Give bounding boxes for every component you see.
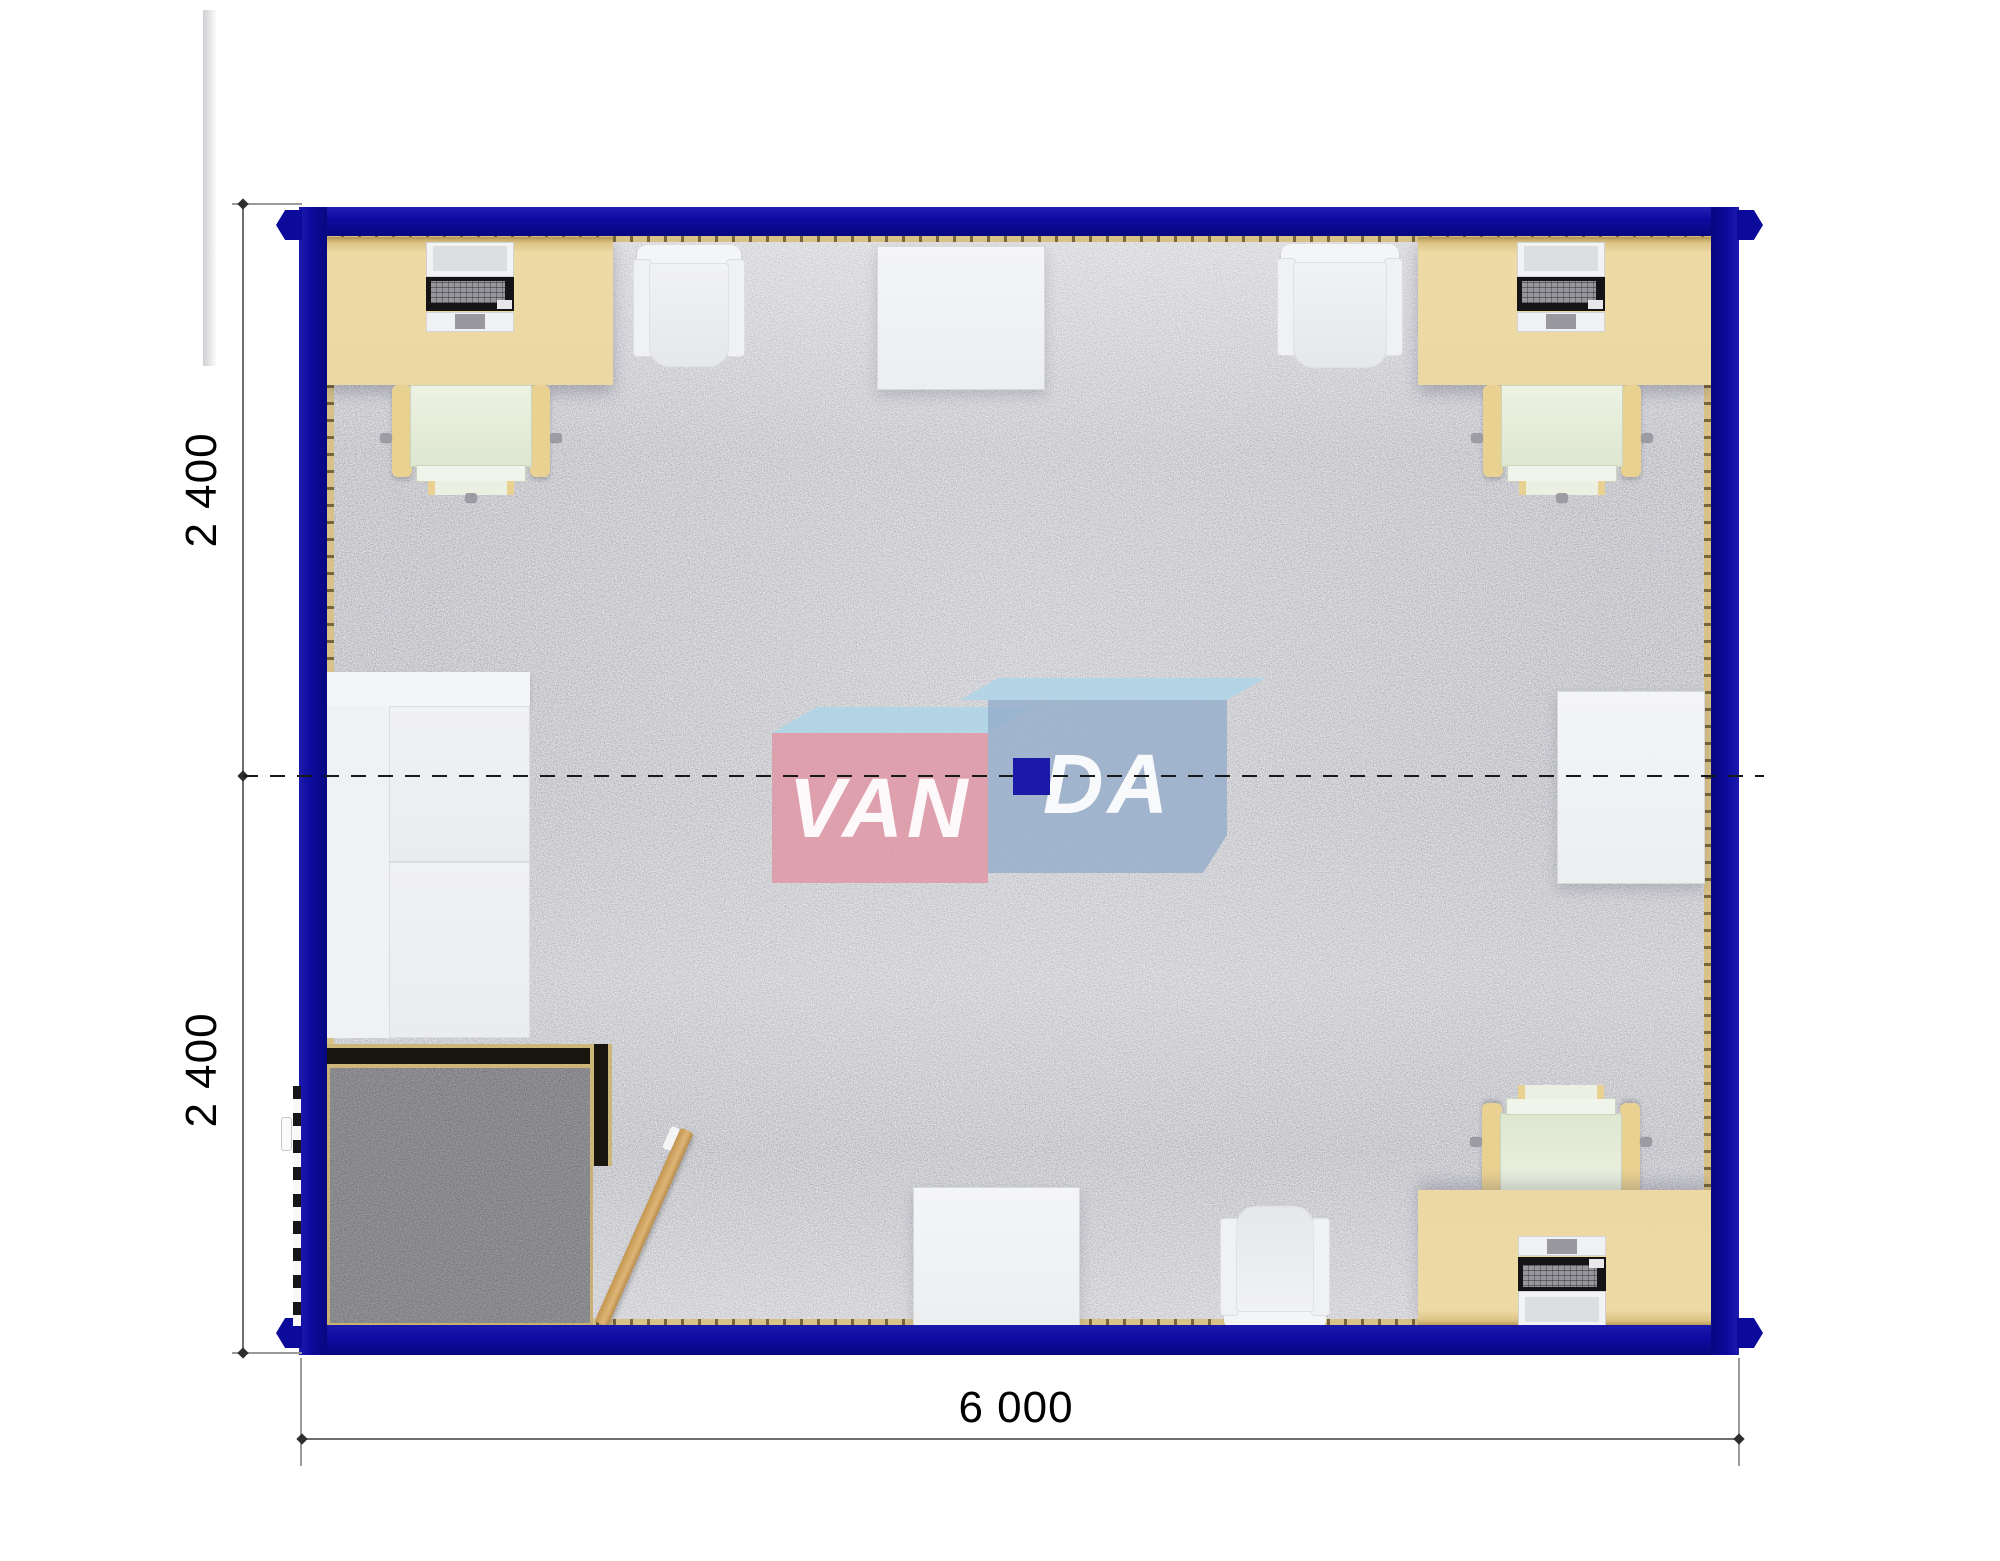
sofa-backrest	[327, 706, 390, 1038]
entry-door-handle	[281, 1117, 292, 1151]
watermark-text-right: DA	[1043, 737, 1172, 831]
entry-door-dashed-marker	[293, 1086, 301, 1326]
floor-plan-canvas: VAN DA	[0, 0, 2000, 1561]
corner-fitting-top-right	[1737, 210, 1763, 240]
dimension-label-left-bottom: 2 400	[177, 1012, 227, 1127]
module-centerline	[243, 775, 1764, 777]
sofa	[327, 672, 530, 1038]
computer-bottom-right	[1518, 1238, 1606, 1326]
sofa-cushion-1	[389, 706, 530, 862]
table-bottom	[913, 1187, 1080, 1328]
watermark-box-left: VAN	[772, 733, 988, 883]
table-right	[1557, 691, 1705, 884]
computer-touchpad	[455, 314, 485, 329]
chair-seat	[410, 385, 532, 467]
table-top	[877, 246, 1045, 390]
dimension-label-left-top: 2 400	[177, 432, 227, 547]
watermark-box-right-top-face	[960, 678, 1265, 700]
guest-chair-top-1	[633, 245, 745, 369]
computer-screen	[426, 242, 514, 277]
guest-chair-top-2	[1277, 244, 1403, 370]
computer-screen-glass	[433, 246, 507, 271]
office-chair-top-right	[1483, 385, 1641, 497]
computer-keyboard	[426, 277, 514, 311]
entry-wall-top	[327, 1044, 612, 1068]
computer-top-right	[1517, 242, 1605, 330]
entry-wall-right	[590, 1044, 612, 1166]
dimension-label-bottom: 6 000	[958, 1383, 1073, 1433]
chair-backrest	[416, 465, 526, 482]
extension-line-bottom-r	[1738, 1358, 1740, 1466]
extension-line-bottom-l	[300, 1358, 302, 1466]
watermark-center-square	[1013, 758, 1050, 795]
container-frame-right	[1711, 207, 1739, 1355]
computer-top-left	[426, 242, 514, 330]
office-chair-top-left	[392, 385, 550, 497]
sofa-cushion-2	[389, 862, 530, 1038]
guest-chair-bottom	[1220, 1204, 1330, 1330]
computer-base	[426, 312, 514, 332]
chair-armrest-right	[530, 385, 550, 477]
container-frame-left	[299, 207, 327, 1355]
container-frame-top	[299, 207, 1739, 236]
office-chair-bottom-right	[1482, 1083, 1640, 1195]
container-frame-bottom	[299, 1325, 1739, 1355]
sofa-armrest	[327, 672, 530, 706]
wall-trim-right	[1704, 235, 1711, 1326]
chair-armrest-left	[392, 385, 412, 477]
entry-room-trim	[327, 1064, 593, 1326]
dimension-line-bottom	[301, 1438, 1741, 1440]
corner-fitting-top-left	[276, 210, 302, 240]
corner-fitting-bottom-right	[1737, 1318, 1763, 1348]
